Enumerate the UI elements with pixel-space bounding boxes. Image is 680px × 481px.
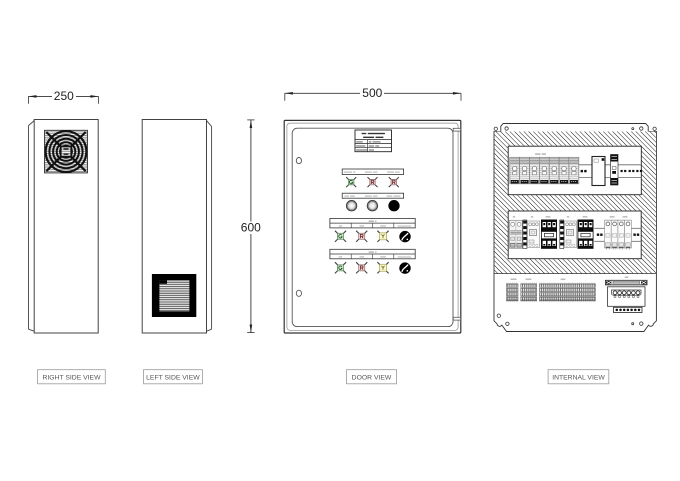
- svg-text:250: 250: [54, 89, 74, 103]
- svg-text:500: 500: [362, 86, 382, 100]
- svg-text:DOOR VIEW: DOOR VIEW: [352, 375, 392, 382]
- svg-text:INTERNAL VIEW: INTERNAL VIEW: [552, 375, 605, 382]
- svg-text:RIGHT SIDE VIEW: RIGHT SIDE VIEW: [42, 375, 101, 382]
- svg-text:LEFT SIDE VIEW: LEFT SIDE VIEW: [146, 375, 200, 382]
- svg-text:600: 600: [241, 221, 261, 235]
